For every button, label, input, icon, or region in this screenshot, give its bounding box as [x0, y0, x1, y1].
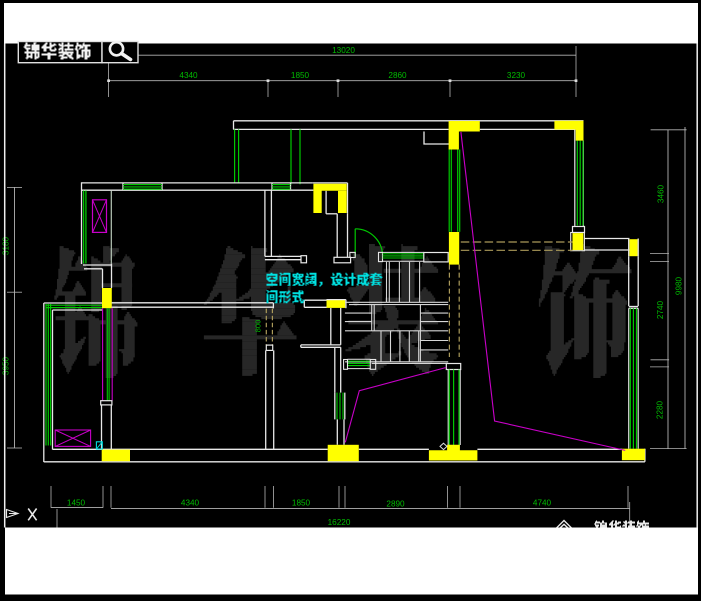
svg-text:9980: 9980 [675, 276, 684, 295]
svg-text:3230: 3230 [507, 71, 526, 80]
svg-text:4740: 4740 [533, 499, 552, 508]
svg-text:2280: 2280 [656, 400, 665, 419]
svg-text:2890: 2890 [386, 500, 405, 509]
svg-text:800: 800 [254, 320, 263, 333]
svg-text:1850: 1850 [292, 499, 311, 508]
svg-text:13020: 13020 [332, 46, 355, 55]
svg-text:1450: 1450 [67, 499, 86, 508]
svg-text:16220: 16220 [328, 518, 351, 527]
svg-text:2740: 2740 [656, 300, 665, 319]
svg-text:4340: 4340 [179, 71, 198, 80]
svg-text:2860: 2860 [388, 71, 407, 80]
svg-text:3460: 3460 [657, 184, 666, 203]
svg-text:4340: 4340 [181, 499, 200, 508]
svg-text:3950: 3950 [2, 356, 11, 375]
svg-text:3180: 3180 [2, 236, 11, 255]
svg-text:1850: 1850 [291, 71, 310, 80]
